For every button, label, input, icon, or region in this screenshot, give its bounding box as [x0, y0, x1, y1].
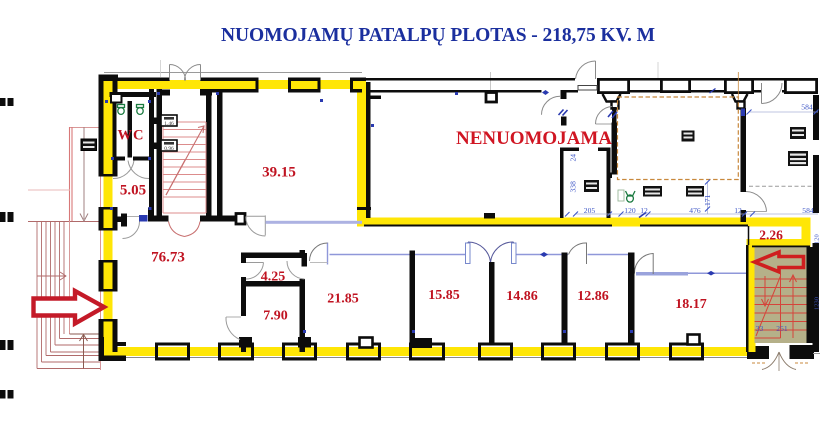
svg-text:4.25: 4.25 [261, 270, 286, 285]
svg-text:15.85: 15.85 [428, 288, 460, 303]
svg-text:1230: 1230 [814, 297, 820, 310]
svg-text:7.90: 7.90 [263, 309, 288, 324]
svg-text:76.73: 76.73 [151, 250, 185, 266]
svg-text:NUOMOJAMŲ PATALPŲ PLOTAS - 218: NUOMOJAMŲ PATALPŲ PLOTAS - 218,75 KV. M [221, 25, 655, 46]
svg-text:205: 205 [584, 206, 596, 215]
svg-text:14.86: 14.86 [506, 289, 538, 304]
svg-text:24: 24 [569, 154, 578, 162]
svg-text:NENUOMOJAMA: NENUOMOJAMA [456, 128, 612, 149]
svg-text:21.85: 21.85 [327, 292, 359, 307]
svg-text:2.26: 2.26 [759, 228, 783, 243]
svg-text:5.05: 5.05 [120, 183, 146, 199]
svg-text:WC: WC [118, 128, 145, 144]
svg-text:12: 12 [734, 206, 742, 215]
svg-text:584: 584 [802, 206, 814, 215]
svg-text:584: 584 [801, 103, 813, 112]
svg-text:251: 251 [776, 324, 788, 333]
svg-text:338: 338 [569, 181, 578, 193]
svg-text:33: 33 [756, 324, 764, 333]
svg-text:1.46: 1.46 [164, 121, 174, 127]
svg-text:12: 12 [640, 206, 648, 215]
svg-text:476: 476 [689, 206, 701, 215]
svg-text:39.15: 39.15 [262, 165, 296, 181]
svg-text:18.17: 18.17 [675, 297, 707, 312]
svg-text:12.86: 12.86 [577, 289, 609, 304]
svg-text:171: 171 [703, 194, 712, 206]
svg-text:120: 120 [624, 206, 636, 215]
svg-text:0.96: 0.96 [164, 146, 174, 152]
svg-text:120: 120 [814, 234, 820, 244]
